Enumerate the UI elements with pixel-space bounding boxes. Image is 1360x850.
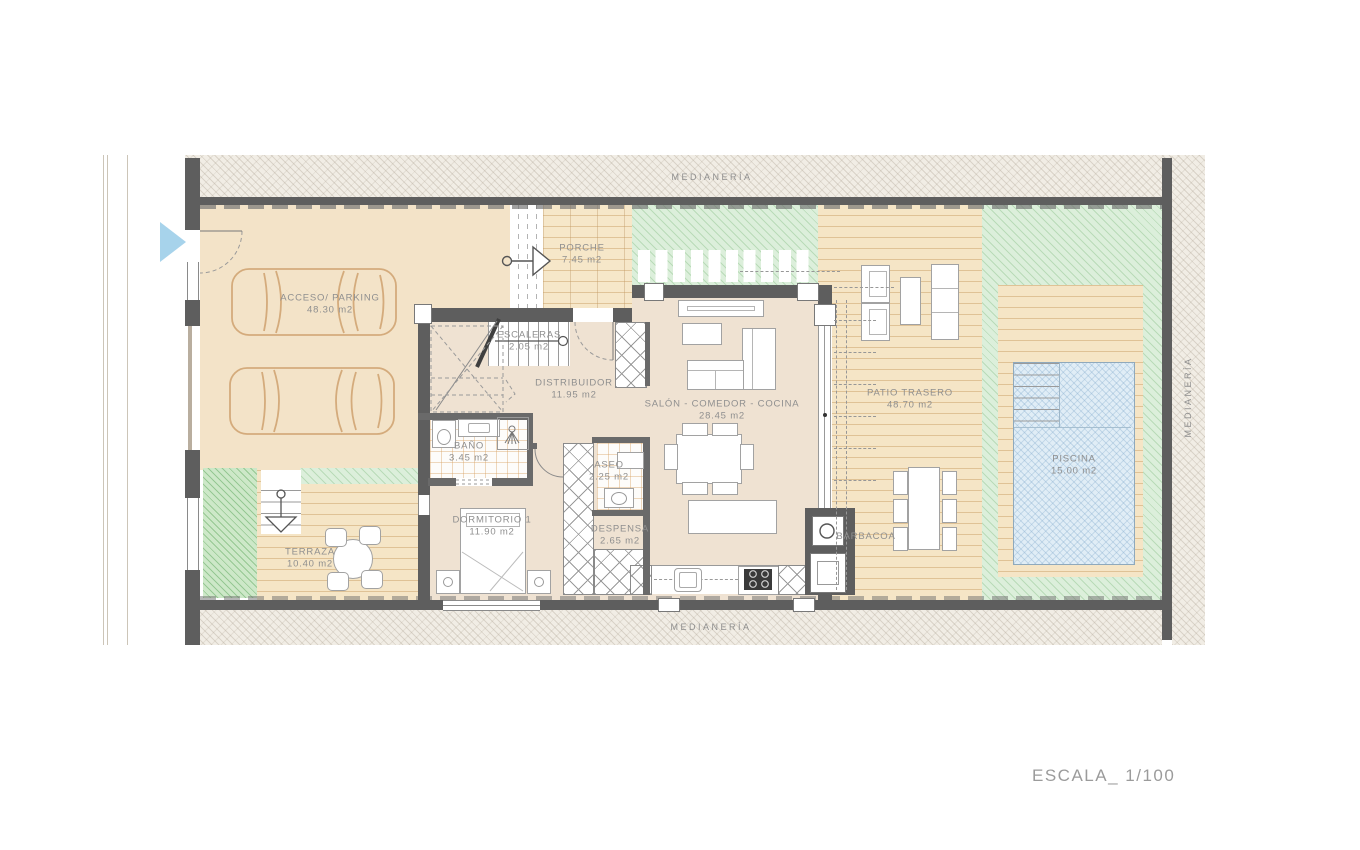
door-handle [823,413,827,417]
facade-wall-segment [185,300,200,326]
dining-table [676,434,742,484]
dining-chair [682,482,708,495]
terrace-chair [361,570,383,589]
dining-chair [664,444,678,470]
overhang-dashed-line [834,352,876,353]
floor-plan-canvas: ACCESO/ PARKING48.30 m2 PORCHE7.45 m2 ES… [0,0,1360,850]
terrace-chair [359,526,381,545]
next-image-arrow-icon[interactable] [160,222,186,262]
nightstand [436,570,460,594]
room-label-acceso-parking: ACCESO/ PARKING48.30 m2 [280,293,379,318]
entry-closet [615,322,647,388]
room-label-dormitorio: DORMITORIO 111.90 m2 [452,515,531,540]
partition-aseo-pantry [592,510,650,516]
kitchen-sink [674,568,702,592]
room-label-barbacoa: BARBACOA [836,531,895,543]
facade-window [187,498,199,570]
overhang-dashed-line [834,448,876,449]
front-door-opening [573,308,613,322]
overhang-dashed-line [834,416,876,417]
overhang-dashed-line [740,271,840,272]
outdoor-dining-chair [942,499,957,523]
garage-door [188,326,192,450]
outdoor-armchair [861,265,890,303]
overhang-dashed-line [846,300,847,590]
outdoor-dining-chair [893,471,908,495]
sofa-section-horizontal [687,360,744,390]
street-edge-line [127,155,128,645]
scale-label: ESCALA_ 1/100 [1032,766,1175,786]
overhang-dashed-line [834,480,876,481]
facade-wall-segment [185,450,200,498]
party-wall-label-right: MEDIANERÍA [1183,356,1193,437]
pillar [797,283,819,301]
dining-chair [712,482,738,495]
nightstand [527,570,551,594]
dining-chair [682,423,708,436]
party-wall-right [1162,158,1172,640]
bedroom-side-window [418,495,430,515]
partition-aseo-top [592,437,650,443]
pillar [414,304,432,324]
terrace-chair [325,528,347,547]
room-label-distribuidor: DISTRIBUIDOR11.95 m2 [535,378,613,403]
entrance-path [510,204,543,310]
house-wall-left [418,322,430,600]
terrace-steps [261,490,301,534]
tv-unit [678,300,764,317]
overhang-dashed-line [834,384,876,385]
room-label-terraza: TERRAZA10.40 m2 [285,547,335,572]
overhang-dashed-line [834,320,876,321]
room-label-aseo: ASEO2.25 m2 [589,460,629,485]
room-label-patio-trasero: PATIO TRASERO48.70 m2 [867,388,953,413]
wall-tick-marks [200,596,1162,600]
wall-tick-marks [200,205,1162,209]
outdoor-dining-chair [942,527,957,551]
partition-closet-right [645,322,650,386]
outdoor-coffee-table [900,277,921,325]
party-wall-label-top: MEDIANERÍA [671,172,752,182]
room-label-porche: PORCHE7.45 m2 [559,243,604,268]
outdoor-armchair [861,303,890,341]
facade-wall-segment [185,570,200,645]
pillar [814,304,836,326]
bath-door-opening [456,478,492,486]
overhang-dashed-line [836,300,837,590]
partition-pantry-right [643,437,650,595]
pergola-slats [638,250,814,282]
terrace-landing [261,470,301,490]
party-wall-top [185,197,1172,205]
hob [744,569,772,590]
pool-steps [1014,363,1060,427]
party-wall-label-bottom: MEDIANERÍA [670,622,751,632]
shower-tray [497,417,529,450]
pool-shelf-line [1014,427,1131,428]
terrace-chair [327,572,349,591]
room-label-escaleras: ESCALERAS2.05 m2 [497,330,561,355]
outdoor-dining-chair [893,499,908,523]
overhang-dashed-line [834,287,894,288]
terrace-planter-top [300,468,418,484]
toilet-room-toilet [604,488,634,508]
terrace-planter-left [203,468,257,598]
facade-wall-segment [185,158,200,230]
room-label-salon: SALÓN - COMEDOR - COCINA28.45 m2 [645,399,800,424]
street-edge-line [103,155,104,645]
bathroom-sink [458,419,500,437]
pillar [658,598,680,612]
dining-chair [712,423,738,436]
street-edge-line [107,155,108,645]
ottoman [682,323,722,345]
kitchen-island [688,500,777,534]
room-label-bano: BAÑO3.45 m2 [449,441,489,466]
sofa-section-vertical [742,328,776,390]
dining-chair [740,444,754,470]
pillar [644,283,664,301]
outdoor-sofa [931,264,959,340]
outdoor-dining-chair [942,471,957,495]
facade-window [187,262,199,300]
room-label-piscina: PISCINA15.00 m2 [1051,454,1097,479]
bedroom-window [443,600,540,611]
room-label-despensa: DESPENSA2.65 m2 [591,524,649,549]
pillar [793,598,815,612]
outdoor-dining-table [908,467,940,550]
